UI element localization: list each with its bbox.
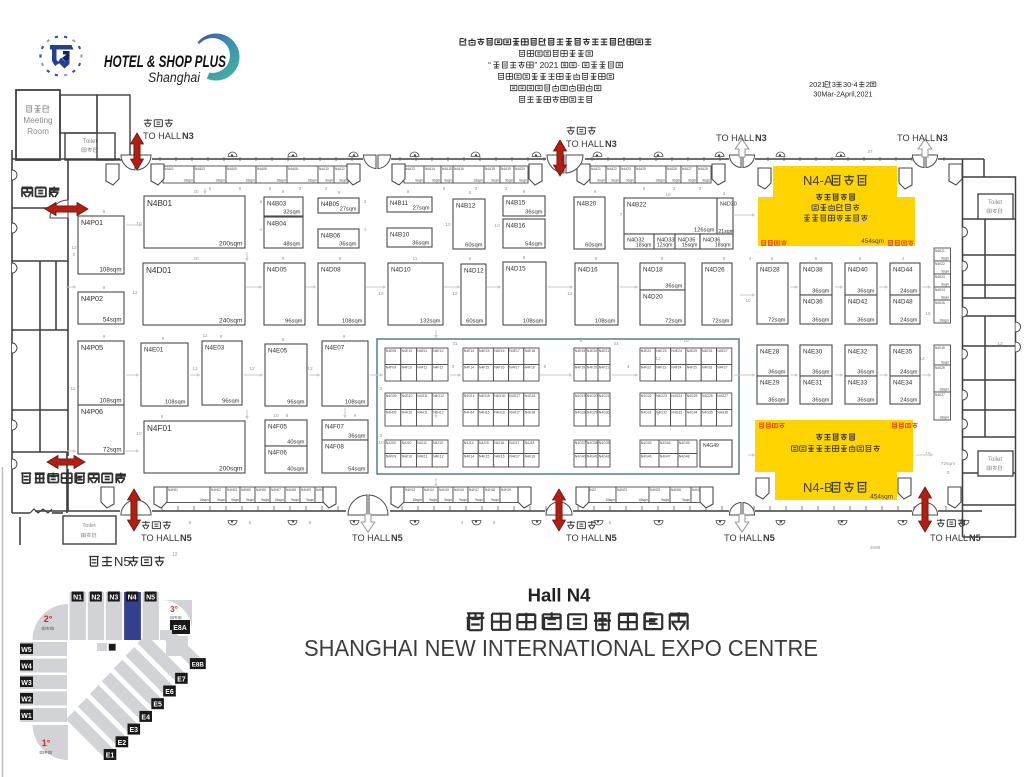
svg-text:N4K14: N4K14 (464, 455, 474, 459)
svg-text:N4G18: N4G18 (525, 394, 536, 398)
svg-text:N4G25: N4G25 (687, 394, 698, 398)
svg-text:N4K29: N4K29 (935, 366, 945, 370)
svg-text:9sqm: 9sqm (611, 179, 619, 183)
svg-text:6: 6 (815, 256, 818, 262)
svg-text:36sqm: 36sqm (857, 289, 875, 295)
svg-text:8: 8 (282, 189, 285, 195)
svg-text:N4H01: N4H01 (168, 488, 178, 492)
svg-text:72sqm: 72sqm (768, 318, 786, 324)
svg-text:3: 3 (380, 433, 383, 439)
svg-text:6: 6 (189, 520, 192, 526)
svg-text:60sqm: 60sqm (585, 243, 603, 249)
svg-text:6: 6 (260, 199, 263, 205)
svg-text:N4E28: N4E28 (760, 348, 780, 355)
svg-text:18sqm: 18sqm (939, 388, 949, 392)
svg-text:N4H25: N4H25 (650, 488, 660, 492)
svg-text:18sqm: 18sqm (307, 179, 317, 183)
svg-text:24sqm: 24sqm (900, 318, 918, 324)
svg-text:11: 11 (203, 333, 208, 339)
svg-text:N4H17: N4H17 (469, 488, 479, 492)
svg-text:9sqm: 9sqm (261, 498, 269, 502)
svg-text:N5: N5 (605, 533, 617, 543)
svg-text:240sqm: 240sqm (219, 318, 243, 325)
svg-text:N4H26: N4H26 (671, 488, 681, 492)
svg-text:31: 31 (613, 341, 619, 347)
svg-text:19: 19 (683, 338, 689, 344)
svg-text:N4G45: N4G45 (679, 441, 690, 445)
svg-text:N4G38: N4G38 (587, 441, 598, 445)
svg-text:N4E24: N4E24 (671, 349, 681, 353)
svg-text:N4E34: N4E34 (893, 379, 913, 386)
svg-text:12: 12 (655, 356, 661, 362)
svg-text:8: 8 (220, 334, 223, 340)
svg-text:N4D16: N4D16 (578, 266, 598, 273)
svg-text:N4E21: N4E21 (599, 349, 609, 353)
svg-text:36sqm: 36sqm (348, 434, 366, 440)
svg-text:2: 2 (866, 80, 870, 89)
svg-text:N4K10: N4K10 (402, 455, 412, 459)
svg-text:N4F19: N4F19 (575, 366, 585, 370)
svg-text:N4G15: N4G15 (479, 394, 490, 398)
svg-text:1°: 1° (42, 738, 51, 748)
svg-text:18sqm: 18sqm (276, 179, 286, 183)
svg-text:72sqm: 72sqm (665, 319, 683, 325)
svg-text:N4D30: N4D30 (720, 201, 737, 207)
svg-text:N4F17: N4F17 (509, 366, 519, 370)
svg-text:12: 12 (71, 245, 77, 251)
svg-text:N4G41: N4G41 (587, 455, 598, 459)
svg-text:9sqm: 9sqm (475, 498, 483, 502)
svg-text:6: 6 (723, 256, 726, 262)
svg-text:N4A28: N4A28 (698, 167, 708, 171)
svg-text:9sqm: 9sqm (491, 179, 499, 183)
svg-text:N4E31: N4E31 (803, 379, 823, 386)
svg-text:Toilet: Toilet (988, 457, 1002, 463)
svg-text:N4E09: N4E09 (386, 349, 396, 353)
svg-text:N4E11: N4E11 (417, 349, 427, 353)
svg-text:N4A10: N4A10 (319, 167, 329, 171)
svg-text:9sqm: 9sqm (306, 498, 314, 502)
svg-text:30-4: 30-4 (843, 80, 858, 89)
svg-text:6: 6 (469, 190, 472, 196)
svg-text:E1: E1 (106, 753, 115, 760)
svg-text:N4G17: N4G17 (509, 394, 520, 398)
svg-text:TO HALL: TO HALL (143, 131, 181, 141)
svg-text:18: 18 (665, 192, 671, 198)
svg-text:N4H18: N4H18 (525, 411, 536, 415)
svg-text:6: 6 (249, 520, 252, 526)
svg-text:18sqm: 18sqm (655, 179, 665, 183)
svg-text:N5: N5 (763, 533, 775, 543)
svg-text:8: 8 (282, 256, 285, 262)
svg-text:TO HALL: TO HALL (930, 533, 968, 543)
svg-text:96sqm: 96sqm (287, 400, 305, 406)
svg-text:18sqm: 18sqm (939, 416, 949, 420)
svg-text:60sqm: 60sqm (465, 243, 483, 249)
svg-text:36sqm: 36sqm (812, 289, 830, 295)
svg-text:N4-B: N4-B (803, 480, 833, 495)
svg-text:6: 6 (239, 186, 242, 192)
svg-text:9sqm: 9sqm (941, 296, 949, 300)
svg-text:N4E07: N4E07 (325, 344, 345, 351)
svg-text:N4E14: N4E14 (464, 349, 474, 353)
svg-text:N4E01: N4E01 (144, 346, 164, 353)
svg-text:N4H13: N4H13 (405, 488, 415, 492)
svg-text:6: 6 (643, 186, 646, 192)
svg-text:HOTEL & SHOP PLUS: HOTEL & SHOP PLUS (104, 52, 226, 71)
svg-text:N4E19: N4E19 (575, 349, 585, 353)
svg-text:3: 3 (325, 186, 328, 192)
svg-text:N4K09: N4K09 (386, 455, 396, 459)
svg-text:N4K12: N4K12 (433, 455, 443, 459)
svg-text:31: 31 (452, 341, 458, 347)
svg-text:N4A21: N4A21 (591, 167, 601, 171)
svg-text:N4K21: N4K21 (935, 249, 945, 253)
svg-text:N4F27: N4F27 (717, 366, 727, 370)
svg-text:N4E18: N4E18 (525, 349, 535, 353)
svg-text:N4E20: N4E20 (587, 349, 597, 353)
svg-text:12: 12 (567, 291, 573, 297)
svg-text:9sqm: 9sqm (246, 498, 254, 502)
svg-text:12: 12 (452, 291, 458, 297)
svg-text:36sqm: 36sqm (339, 242, 357, 248)
svg-text:N4D05: N4D05 (267, 266, 287, 273)
svg-text:20: 20 (193, 189, 199, 195)
svg-text:N4E16: N4E16 (494, 349, 504, 353)
svg-text:454sqm: 454sqm (861, 238, 884, 245)
svg-text:N4F21: N4F21 (599, 366, 609, 370)
svg-text:N4K27: N4K27 (935, 393, 945, 397)
svg-text:N4D38: N4D38 (803, 266, 823, 273)
svg-text:9: 9 (580, 338, 583, 344)
svg-text:32sqm: 32sqm (283, 210, 301, 216)
svg-text:40sqm: 40sqm (287, 440, 305, 446)
svg-text:N4P06: N4P06 (81, 407, 103, 416)
svg-text:15sqm: 15sqm (682, 243, 698, 249)
svg-text:N4F18: N4F18 (525, 366, 535, 370)
svg-text:N1: N1 (73, 595, 82, 602)
svg-text:10: 10 (273, 413, 279, 419)
svg-text:N4B03: N4B03 (267, 200, 287, 207)
svg-text:N4B15: N4B15 (506, 199, 526, 206)
svg-text:72sqm: 72sqm (712, 319, 730, 325)
svg-text:N4A22: N4A22 (607, 167, 617, 171)
svg-text:N5: N5 (114, 554, 131, 569)
svg-text:W4: W4 (21, 663, 32, 670)
svg-text:36sqm: 36sqm (665, 284, 683, 290)
svg-text:N4G28: N4G28 (575, 411, 586, 415)
svg-text:Hall N4: Hall N4 (528, 585, 591, 606)
svg-text:N4A01: N4A01 (164, 167, 174, 171)
svg-text:N4D44: N4D44 (893, 266, 913, 273)
svg-text:TO HALL: TO HALL (352, 533, 390, 543)
svg-text:N4F23: N4F23 (656, 366, 666, 370)
svg-text:24sqm: 24sqm (900, 370, 918, 376)
svg-text:72sqm: 72sqm (103, 447, 122, 454)
svg-text:E7: E7 (177, 676, 186, 683)
svg-text:N4D28: N4D28 (760, 266, 780, 273)
svg-text:N4E30: N4E30 (803, 348, 823, 355)
svg-text:36sqm: 36sqm (857, 370, 875, 376)
svg-text:N4A20: N4A20 (515, 167, 525, 171)
svg-text:4: 4 (493, 463, 496, 469)
svg-text:3°: 3° (170, 605, 178, 614)
svg-text:N4E29: N4E29 (760, 379, 780, 386)
svg-text:12: 12 (132, 290, 138, 296)
svg-text:N2: N2 (91, 595, 100, 602)
svg-text:N4A08: N4A08 (288, 167, 298, 171)
svg-text:N4G48: N4G48 (679, 455, 690, 459)
svg-text:N4H08: N4H08 (286, 488, 296, 492)
svg-text:W3: W3 (21, 680, 32, 687)
svg-text:9: 9 (407, 189, 410, 195)
svg-text:E8A: E8A (173, 625, 187, 632)
svg-text:9sqm: 9sqm (429, 498, 437, 502)
svg-text:N4G35: N4G35 (702, 411, 713, 415)
svg-text:N4G10: N4G10 (402, 394, 413, 398)
svg-text:9sqm: 9sqm (941, 257, 949, 261)
svg-text:E6: E6 (165, 689, 174, 696)
svg-text:9: 9 (343, 334, 346, 340)
svg-text:TO HALL: TO HALL (897, 133, 935, 143)
svg-text:N4G26: N4G26 (702, 394, 713, 398)
svg-text:18sqm: 18sqm (638, 498, 648, 502)
svg-text:9: 9 (338, 190, 341, 196)
svg-text:N4F01: N4F01 (147, 424, 172, 433)
svg-text:N4F11: N4F11 (417, 366, 427, 370)
svg-text:200sqm: 200sqm (219, 241, 243, 248)
svg-text:9: 9 (103, 285, 106, 291)
svg-text:3: 3 (673, 186, 676, 192)
svg-text:N4J10: N4J10 (402, 441, 412, 445)
svg-text:9: 9 (523, 189, 526, 195)
svg-text:N4E25: N4E25 (687, 349, 697, 353)
svg-text:8: 8 (493, 520, 496, 526)
svg-text:N4H16: N4H16 (454, 488, 464, 492)
svg-text:6: 6 (544, 364, 547, 370)
svg-text:N4G47: N4G47 (660, 455, 671, 459)
svg-text:N4J17: N4J17 (509, 441, 519, 445)
svg-text:N4F22: N4F22 (641, 366, 651, 370)
svg-text:200sqm: 200sqm (219, 466, 243, 473)
svg-text:9sqm: 9sqm (325, 179, 333, 183)
svg-text:18sqm: 18sqm (199, 498, 209, 502)
svg-text:Toilet: Toilet (83, 138, 98, 145)
svg-text:N4F25: N4F25 (687, 366, 697, 370)
svg-text:N4E05: N4E05 (268, 347, 288, 354)
svg-text:2°: 2° (44, 614, 53, 624)
svg-text:N4H05: N4H05 (241, 488, 251, 492)
svg-text:9sqm: 9sqm (432, 179, 440, 183)
svg-text:36sqm: 36sqm (525, 210, 543, 216)
svg-text:3: 3 (380, 386, 383, 392)
svg-text:6: 6 (839, 520, 842, 526)
svg-text:N4J18: N4J18 (525, 441, 535, 445)
svg-text:E5: E5 (153, 702, 162, 709)
svg-text:N4E35: N4E35 (893, 348, 913, 355)
svg-text:96sqm: 96sqm (285, 319, 303, 325)
svg-text:15: 15 (925, 311, 931, 317)
svg-text:36sqm: 36sqm (768, 370, 786, 376)
svg-text:20: 20 (193, 256, 199, 262)
svg-text:N4P01: N4P01 (81, 218, 103, 227)
svg-text:N4G24: N4G24 (671, 394, 682, 398)
svg-text:10: 10 (136, 431, 142, 437)
svg-text:18sqm: 18sqm (715, 243, 731, 249)
svg-text:18sqm: 18sqm (473, 179, 483, 183)
svg-text:Room: Room (27, 127, 49, 136)
svg-text:54sqm: 54sqm (348, 467, 366, 473)
svg-text:18sqm: 18sqm (605, 498, 615, 502)
svg-text:3: 3 (505, 186, 508, 192)
svg-text:N4G34: N4G34 (687, 411, 698, 415)
svg-text:N4G20: N4G20 (587, 394, 598, 398)
svg-text:N4G46: N4G46 (641, 455, 652, 459)
svg-text:8: 8 (661, 256, 664, 262)
svg-text:N4F26: N4F26 (702, 366, 712, 370)
svg-text:36sqm: 36sqm (768, 398, 786, 404)
svg-text:9sqm: 9sqm (597, 179, 605, 183)
svg-text:36sqm: 36sqm (812, 318, 830, 324)
svg-text:N4A19: N4A19 (501, 167, 511, 171)
svg-text:N4F08: N4F08 (325, 443, 344, 450)
svg-text:N4F05: N4F05 (268, 423, 287, 430)
svg-text:12: 12 (249, 366, 255, 372)
svg-text:6: 6 (309, 520, 312, 526)
svg-text:60sqm: 60sqm (466, 319, 484, 325)
svg-text:N4G14: N4G14 (464, 394, 475, 398)
svg-text:3: 3 (723, 191, 726, 197)
svg-text:6: 6 (609, 520, 612, 526)
svg-text:9sqm: 9sqm (505, 179, 513, 183)
svg-text:N4B05: N4B05 (321, 202, 340, 208)
svg-text:N4F07: N4F07 (325, 423, 344, 430)
svg-text:9sqm: 9sqm (688, 179, 696, 183)
svg-text:10: 10 (745, 298, 751, 304)
svg-text:3: 3 (364, 199, 367, 205)
svg-text:132sqm: 132sqm (420, 319, 441, 325)
svg-text:2: 2 (73, 252, 76, 258)
svg-text:6: 6 (771, 256, 774, 262)
svg-text:N4G31: N4G31 (641, 411, 652, 415)
svg-text:N4A18: N4A18 (485, 167, 495, 171)
svg-text:N4A12: N4A12 (335, 167, 345, 171)
svg-text:18sqm: 18sqm (412, 498, 422, 502)
svg-text:9: 9 (779, 520, 782, 526)
svg-text:108sqm: 108sqm (342, 319, 363, 325)
svg-text:8: 8 (282, 337, 285, 343)
svg-text:N4F06: N4F06 (268, 449, 287, 456)
svg-text:Shanghai: Shanghai (148, 70, 201, 85)
svg-text:27sqm: 27sqm (340, 207, 357, 213)
svg-text:N4J15: N4J15 (479, 441, 489, 445)
svg-text:4698: 4698 (870, 545, 881, 551)
svg-text:N4D20: N4D20 (643, 293, 663, 300)
svg-text:27sqm: 27sqm (413, 206, 430, 212)
svg-text:TO HALL: TO HALL (566, 139, 604, 149)
svg-text:” 2021: ” 2021 (535, 60, 559, 70)
svg-text:N4J09: N4J09 (386, 441, 396, 445)
svg-text:N4A03: N4A03 (195, 167, 205, 171)
svg-text:9: 9 (595, 256, 598, 262)
svg-text:N4F10: N4F10 (402, 366, 412, 370)
svg-text:N4F24: N4F24 (671, 366, 681, 370)
svg-text:N4E22: N4E22 (641, 349, 651, 353)
svg-text:N4D26: N4D26 (705, 266, 725, 273)
svg-text:TO HALL: TO HALL (724, 533, 762, 543)
svg-text:N4K15: N4K15 (479, 455, 489, 459)
svg-text:454sqm: 454sqm (870, 494, 893, 501)
svg-text:9sqm: 9sqm (459, 498, 467, 502)
svg-text:10: 10 (378, 440, 384, 446)
svg-text:N4K24: N4K24 (935, 288, 945, 292)
svg-text:6: 6 (859, 256, 862, 262)
svg-text:N4K16: N4K16 (494, 455, 504, 459)
svg-text:N4G43: N4G43 (641, 441, 652, 445)
svg-text:N3: N3 (755, 133, 767, 143)
svg-text:N4G19: N4G19 (575, 394, 586, 398)
svg-text:37: 37 (867, 149, 873, 155)
svg-text:54sqm: 54sqm (525, 242, 543, 248)
svg-text:N4E15: N4E15 (479, 349, 489, 353)
svg-text:24sqm: 24sqm (900, 398, 918, 404)
svg-text:N4G27: N4G27 (717, 394, 728, 398)
svg-text:N4A25: N4A25 (636, 167, 646, 171)
svg-text:3: 3 (452, 364, 455, 370)
svg-text:N4J11: N4J11 (417, 441, 427, 445)
svg-text:N4G49: N4G49 (703, 443, 719, 449)
svg-text:36sqm: 36sqm (412, 241, 430, 247)
svg-text:N4E26: N4E26 (702, 349, 712, 353)
svg-text:108sqm: 108sqm (345, 400, 366, 406)
svg-text:N4G11: N4G11 (417, 394, 428, 398)
svg-text:9: 9 (523, 255, 526, 261)
svg-text:18sqm: 18sqm (245, 179, 255, 183)
svg-text:48sqm: 48sqm (283, 242, 301, 248)
svg-text:N4H16: N4H16 (494, 411, 505, 415)
svg-text:N4H17: N4H17 (509, 411, 520, 415)
svg-text:36sqm: 36sqm (857, 318, 875, 324)
svg-text:W2: W2 (21, 696, 32, 703)
svg-text:W5: W5 (21, 647, 32, 654)
svg-text:9: 9 (339, 256, 342, 262)
svg-text:N4G23: N4G23 (656, 394, 667, 398)
svg-text:N4J16: N4J16 (494, 441, 504, 445)
svg-text:6: 6 (209, 186, 212, 192)
svg-text:18sqm: 18sqm (939, 319, 949, 323)
svg-text:N4F16: N4F16 (494, 366, 504, 370)
svg-text:N4F15: N4F15 (479, 366, 489, 370)
svg-text:3: 3 (609, 413, 612, 419)
svg-text:N4A14: N4A14 (425, 167, 435, 171)
svg-text:N4G42: N4G42 (599, 455, 610, 459)
svg-text:N4G09: N4G09 (386, 394, 397, 398)
svg-text:108sqm: 108sqm (523, 319, 544, 325)
svg-text:N4P02: N4P02 (81, 294, 103, 303)
svg-text:N5: N5 (969, 533, 981, 543)
svg-text:N4G29: N4G29 (587, 411, 598, 415)
svg-text:N4H19: N4H19 (501, 488, 511, 492)
svg-text:Toilet: Toilet (82, 523, 96, 529)
svg-text:TO HALL: TO HALL (141, 533, 179, 543)
svg-text:N5: N5 (391, 533, 403, 543)
svg-text:N4P05: N4P05 (81, 343, 103, 352)
svg-text:5: 5 (469, 256, 472, 262)
svg-text:9sqm: 9sqm (231, 498, 239, 502)
svg-text:N4G33: N4G33 (671, 411, 682, 415)
svg-text:N4K17: N4K17 (509, 455, 519, 459)
svg-text:N4K15: N4K15 (935, 346, 945, 350)
